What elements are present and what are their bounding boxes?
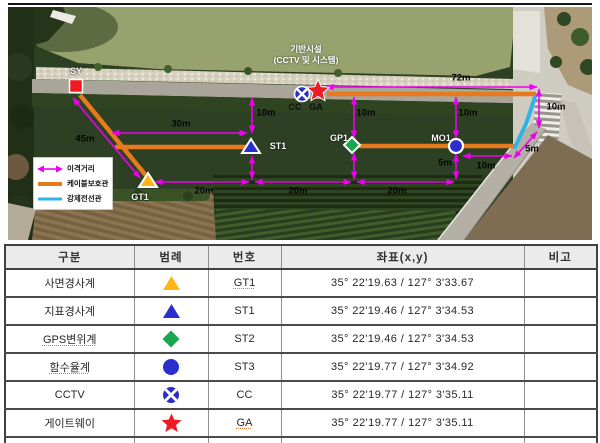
table-row: 함수율계 ST3 35° 22'19.77 / 127° 3'34.92 xyxy=(5,353,597,381)
table-row: 사면경사계 GT1 35° 22'19.63 / 127° 3'33.67 xyxy=(5,269,597,297)
distance-30m: 30m xyxy=(171,119,190,130)
table-row: 게이트웨이 GA 35° 22'19.77 / 127° 3'35.11 xyxy=(5,409,597,437)
distance-10m-st1: 10m xyxy=(256,108,275,119)
label-gt1: GT1 xyxy=(131,192,149,202)
cable-line-icon xyxy=(37,180,63,188)
cell-coords: 35° 22'19.46 / 127° 3'34.53 xyxy=(281,297,524,325)
cell-code: ST1 xyxy=(208,297,281,325)
cell-legend xyxy=(134,269,208,297)
legend-marker-star xyxy=(161,413,182,434)
site-aerial-photo: SY GT1 ST1 GP1 MO1 CC GA 기반시설 (CCTV 및 시스… xyxy=(8,7,592,240)
header-coords: 좌표(x,y) xyxy=(281,245,524,269)
cell-note xyxy=(524,381,597,409)
cell-category: GPS변위계 xyxy=(5,325,134,353)
label-gp1: GP1 xyxy=(330,133,348,143)
distance-5m-diag: 5m xyxy=(525,144,539,155)
header-note: 비고 xyxy=(524,245,597,269)
label-cc: CC xyxy=(289,102,302,112)
distance-20m-3: 20m xyxy=(387,186,406,197)
legend-marker-triangle xyxy=(162,303,181,319)
cell-note xyxy=(524,437,597,443)
cell-category: 사면경사계 xyxy=(5,269,134,297)
table-row: 터미널 박스 SY 35° 22'19.32 / 127° 3'35.18 xyxy=(5,437,597,443)
distance-10m-mo1: 10m xyxy=(458,108,477,119)
table-row: CCTV CC 35° 22'19.77 / 127° 3'35.11 xyxy=(5,381,597,409)
distance-5m-mo1: 5m xyxy=(438,158,452,169)
distance-10m-right: 10m xyxy=(546,102,565,113)
cell-note xyxy=(524,269,597,297)
label-sy: SY xyxy=(70,66,82,76)
legend-marker-circle xyxy=(162,358,180,376)
legend-item-cable: 케이블보호관 xyxy=(34,178,112,189)
figure-top-rule xyxy=(8,3,592,5)
legend-item-label: 이격거리 xyxy=(67,163,95,174)
cell-coords: 35° 22'19.63 / 127° 3'33.67 xyxy=(281,269,524,297)
label-ga: GA xyxy=(309,102,323,112)
header-code: 번호 xyxy=(208,245,281,269)
cell-note xyxy=(524,325,597,353)
cell-note xyxy=(524,297,597,325)
map-legend: 이격거리 케이블보호관 강제전선관 xyxy=(33,157,113,210)
distance-45m: 45m xyxy=(75,134,94,145)
marker-gt1-triangle xyxy=(137,171,159,189)
cell-coords: 35° 22'19.46 / 127° 3'34.53 xyxy=(281,325,524,353)
cell-code: GT1 xyxy=(208,269,281,297)
distance-72m: 72m xyxy=(451,73,470,84)
steel-conduit-line xyxy=(515,97,535,147)
legend-marker-circle-x xyxy=(162,386,180,404)
legend-item-conduit: 강제전선관 xyxy=(34,193,112,204)
cell-category: 함수율계 xyxy=(5,353,134,381)
cell-code: ST2 xyxy=(208,325,281,353)
cell-coords: 35° 22'19.77 / 127° 3'34.92 xyxy=(281,353,524,381)
cell-coords: 35° 22'19.77 / 127° 3'35.11 xyxy=(281,409,524,437)
cell-note xyxy=(524,409,597,437)
table-row: 지표경사계 ST1 35° 22'19.46 / 127° 3'34.53 xyxy=(5,297,597,325)
header-legend: 범례 xyxy=(134,245,208,269)
marker-st1-triangle xyxy=(240,137,262,155)
distance-10m-horiz: 10m xyxy=(476,161,495,172)
cell-category: 터미널 박스 xyxy=(5,437,134,443)
legend-item-distance: 이격거리 xyxy=(34,163,112,174)
cell-legend xyxy=(134,381,208,409)
distance-20m-1: 20m xyxy=(194,186,213,197)
table-header-row: 구분 범례 번호 좌표(x,y) 비고 xyxy=(5,245,597,269)
marker-sy-square xyxy=(68,78,84,94)
site-facility-label: 기반시설 (CCTV 및 시스템) xyxy=(274,44,339,66)
legend-item-label: 케이블보호관 xyxy=(67,178,108,189)
cell-note xyxy=(524,353,597,381)
site-facility-label-line2: (CCTV 및 시스템) xyxy=(274,55,339,66)
cell-category: 게이트웨이 xyxy=(5,409,134,437)
distance-20m-2: 20m xyxy=(288,186,307,197)
cell-legend xyxy=(134,297,208,325)
conduit-line-icon xyxy=(37,195,63,203)
cell-category: CCTV xyxy=(5,381,134,409)
marker-ga-star xyxy=(306,79,330,103)
cell-legend xyxy=(134,409,208,437)
label-mo1: MO1 xyxy=(431,133,451,143)
cell-coords: 35° 22'19.32 / 127° 3'35.18 xyxy=(281,437,524,443)
cell-code: CC xyxy=(208,381,281,409)
distance-arrow-icon xyxy=(37,164,63,174)
table-row: GPS변위계 ST2 35° 22'19.46 / 127° 3'34.53 xyxy=(5,325,597,353)
document-page: SY GT1 ST1 GP1 MO1 CC GA 기반시설 (CCTV 및 시스… xyxy=(0,0,600,443)
cell-coords: 35° 22'19.77 / 127° 3'35.11 xyxy=(281,381,524,409)
cell-legend xyxy=(134,437,208,443)
legend-marker-triangle xyxy=(162,275,181,291)
instrument-table: 구분 범례 번호 좌표(x,y) 비고 사면경사계 GT1 35° 22'19.… xyxy=(4,244,598,443)
cell-code: ST3 xyxy=(208,353,281,381)
cell-code: SY xyxy=(208,437,281,443)
header-category: 구분 xyxy=(5,245,134,269)
cell-legend xyxy=(134,353,208,381)
cell-legend xyxy=(134,325,208,353)
label-st1: ST1 xyxy=(270,141,287,151)
distance-10m-gp1: 10m xyxy=(356,108,375,119)
site-facility-label-line1: 기반시설 xyxy=(274,44,339,55)
legend-marker-diamond xyxy=(162,330,180,348)
cell-category: 지표경사계 xyxy=(5,297,134,325)
cell-code: GA xyxy=(208,409,281,437)
legend-item-label: 강제전선관 xyxy=(67,193,102,204)
